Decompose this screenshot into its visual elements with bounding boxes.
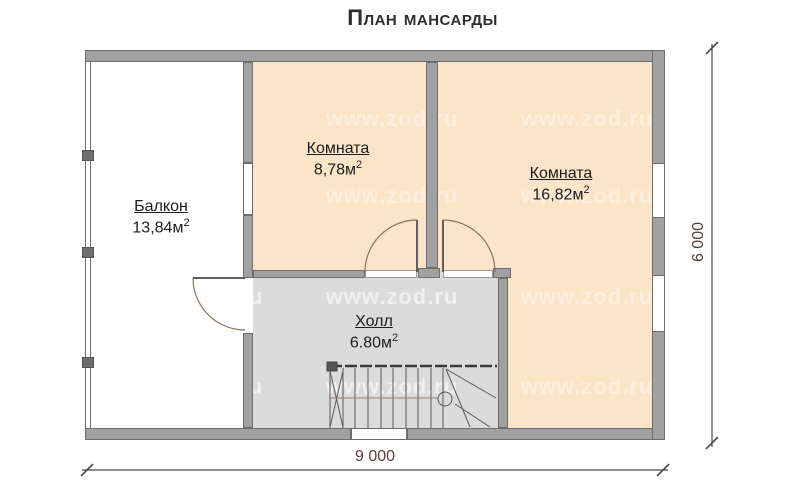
room-label: Комната	[268, 141, 408, 158]
window-right-upper	[652, 163, 665, 218]
balcony-label-group: Балкон 13,84м2	[100, 199, 222, 237]
room-area: 8,78м2	[268, 160, 408, 179]
wall-room-hall-right	[493, 268, 511, 278]
railing-post	[82, 247, 94, 258]
balcony-door-opening	[243, 278, 253, 333]
wall-top	[85, 50, 665, 62]
dimension-width-label: 9 000	[330, 448, 420, 466]
window-bottom	[351, 428, 407, 440]
door-threshold-left	[365, 270, 417, 278]
wall-right	[652, 50, 665, 440]
page-title: План мансарды	[250, 5, 595, 31]
room-small-label-group: Комната 8,78м2	[268, 141, 408, 179]
wall-balcony-divider-upper	[243, 62, 253, 163]
balcony-railing	[85, 62, 91, 428]
door-threshold-right	[443, 270, 493, 278]
wall-balcony-divider-lower	[243, 333, 253, 428]
window-right-lower	[652, 275, 665, 332]
wall-bottom-left	[85, 428, 351, 440]
room-area: 16,82м2	[491, 185, 631, 204]
wall-hall-room-divider	[498, 278, 508, 428]
wall-room-hall-left	[253, 270, 365, 278]
room-area: 13,84м2	[100, 218, 222, 237]
railing-post	[82, 357, 94, 368]
room-area: 6.80м2	[309, 333, 439, 352]
room-label: Комната	[491, 166, 631, 183]
wall-bottom-right	[407, 428, 665, 440]
wall-balcony-divider-mid	[243, 215, 253, 278]
room-label: Холл	[309, 314, 439, 331]
hall-label-group: Холл 6.80м2	[309, 314, 439, 352]
dimension-height-label: 6 000	[690, 219, 708, 265]
wall-between-rooms	[426, 62, 438, 268]
room-label: Балкон	[100, 199, 222, 216]
balcony-floor	[85, 62, 243, 428]
room-large-label-group: Комната 16,82м2	[491, 166, 631, 204]
wall-between-rooms-stub	[418, 268, 440, 278]
window-balcony-room	[243, 163, 253, 215]
floor-plan: План мансарды www.zod.ru www.zod.ru www.…	[0, 0, 795, 496]
railing-post	[82, 150, 94, 161]
